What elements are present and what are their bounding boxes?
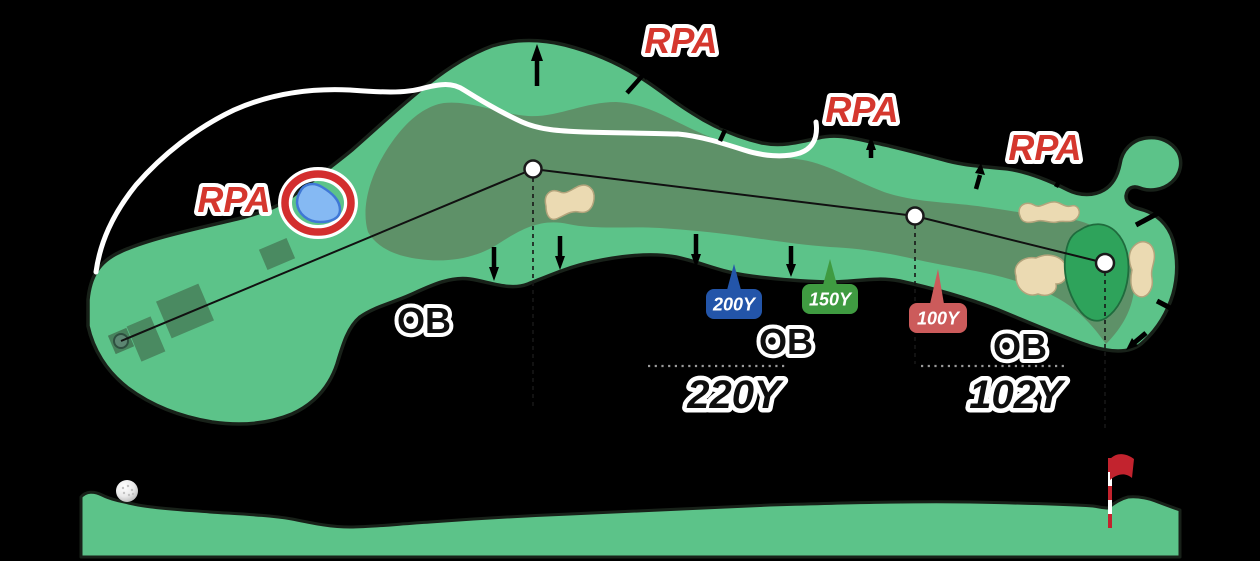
ob-label-2: OB xyxy=(759,321,813,362)
bunker xyxy=(1129,242,1154,297)
waypoint-dot-2[interactable] xyxy=(907,208,924,225)
hole-top-view: RPA RPA RPA RPA OB OB OB 220Y 102Y 20 xyxy=(88,20,1188,430)
rpa-label-4: RPA xyxy=(1008,127,1081,168)
marker-label: 200Y xyxy=(712,295,757,315)
ob-o-dot xyxy=(1002,342,1010,350)
rpa-label-1: RPA xyxy=(197,179,270,220)
golf-ball xyxy=(116,480,138,502)
ob-o-dot xyxy=(768,337,776,345)
segment-distance-102: 102Y xyxy=(969,373,1066,417)
marker-label: 150Y xyxy=(809,290,853,310)
rpa-label-2: RPA xyxy=(644,20,717,61)
ob-label-3: OB xyxy=(993,326,1047,367)
waypoint-dot-1[interactable] xyxy=(525,161,542,178)
pin-dot[interactable] xyxy=(1096,254,1114,272)
ob-o-dot xyxy=(406,316,414,324)
rpa-label-3: RPA xyxy=(825,89,898,130)
hole-side-view xyxy=(81,454,1180,557)
ob-label-1: OB xyxy=(397,300,451,341)
side-terrain xyxy=(81,492,1180,557)
segment-distance-220: 220Y xyxy=(686,373,784,417)
flag-cloth xyxy=(1110,454,1134,480)
golf-hole-map: RPA RPA RPA RPA OB OB OB 220Y 102Y 20 xyxy=(0,0,1260,561)
marker-label: 100Y xyxy=(917,309,961,329)
